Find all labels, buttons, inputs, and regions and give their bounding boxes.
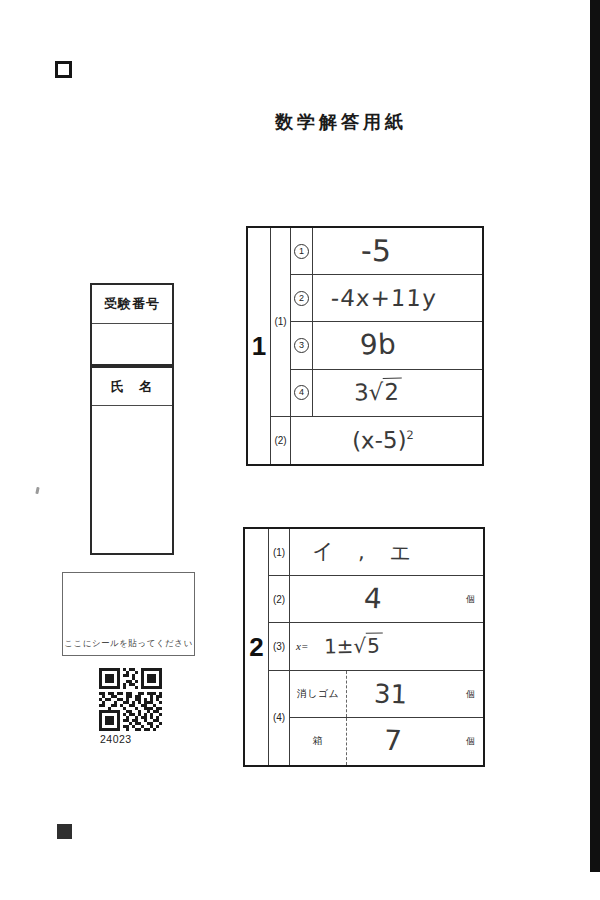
question-2-number: 2 (245, 529, 269, 765)
name-box: 氏 名 (90, 366, 174, 555)
q1-sub3-number: 3 (291, 322, 313, 369)
q1-sub1-answer-cell: -5 (313, 228, 482, 275)
qr-code-icon (99, 668, 162, 731)
q1-sub2-answer-cell: -4x+11y (313, 275, 482, 322)
exam-number-box: 受験番号 (90, 283, 174, 366)
page-title: 数学解答用紙 (235, 110, 447, 134)
handwritten-answer-radical: 3√2 (353, 381, 401, 405)
q2-part4-row1-answer-cell: 31 個 (347, 671, 483, 717)
handwritten-answer-squared: (x-5)2 (351, 428, 413, 452)
q2-part1-label: (1) (269, 529, 290, 576)
counter-unit-label: 個 (466, 593, 475, 606)
q2-part1-answer-cell: イ , エ (290, 529, 483, 576)
circled-number-4: 4 (294, 385, 309, 400)
handwritten-answer: -5 (360, 236, 390, 267)
qr-code-number: 24023 (100, 733, 132, 745)
q1-part2-label: (2) (271, 417, 291, 464)
handwritten-answer: -4x+11y (330, 287, 437, 310)
item-label-eraser: 消しゴム (290, 671, 347, 717)
answer-table-1: 1 (1) 1 -5 2 -4x+11y 3 9b 4 3√2 (2) (x-5… (246, 226, 484, 466)
q2-part2-answer-cell: 4 個 (290, 576, 483, 623)
answer-table-2: 2 (1) イ , エ (2) 4 個 (3) x= 1±√5 (4) 消しゴム… (243, 527, 485, 767)
x-equals-label: x= (296, 640, 308, 652)
circled-number-2: 2 (294, 291, 309, 306)
q2-part4-row1: 消しゴム 31 個 (290, 671, 483, 718)
counter-unit-label: 個 (466, 735, 475, 748)
seal-instruction-text: ここにシールを貼ってください (63, 638, 194, 650)
question-1-number: 1 (248, 228, 271, 464)
q1-sub3-answer-cell: 9b (313, 322, 482, 369)
q2-part3-label: (3) (269, 623, 290, 670)
handwritten-answer: イ , エ (312, 541, 420, 564)
counter-unit-label: 個 (466, 687, 475, 700)
q1-part1-label: (1) (271, 228, 291, 417)
scanned-answer-sheet: 数学解答用紙 受験番号 氏 名 ここにシールを貼ってください (0, 0, 600, 900)
q2-part4-row2: 箱 7 個 (290, 718, 483, 765)
filled-square-mark-icon (57, 824, 72, 839)
handwritten-answer: 7 (384, 727, 403, 756)
handwritten-answer: 31 (374, 680, 408, 707)
hollow-square-mark-icon (55, 61, 72, 78)
q1-sub4-number: 4 (291, 370, 313, 417)
seal-placement-box: ここにシールを貼ってください (62, 572, 195, 656)
handwritten-answer: 4 (363, 585, 382, 614)
handwritten-answer: 9b (359, 331, 396, 360)
q2-part4-label: (4) (269, 671, 290, 765)
q1-part2-answer-cell: (x-5)2 (291, 417, 482, 464)
circled-number-3: 3 (294, 338, 309, 353)
q2-part4-row2-answer-cell: 7 個 (347, 718, 483, 765)
scan-speck (35, 487, 39, 494)
q1-sub2-number: 2 (291, 275, 313, 322)
name-label: 氏 名 (92, 368, 172, 406)
handwritten-answer-radical: 1±√5 (324, 636, 383, 657)
circled-number-1: 1 (294, 244, 309, 259)
q1-sub4-answer-cell: 3√2 (313, 370, 482, 417)
q1-sub1-number: 1 (291, 228, 313, 275)
exam-number-label: 受験番号 (92, 285, 172, 324)
scan-edge-bar (590, 0, 600, 872)
q2-part3-answer-cell: x= 1±√5 (290, 623, 483, 670)
item-label-box: 箱 (290, 718, 347, 765)
q2-part2-label: (2) (269, 576, 290, 623)
